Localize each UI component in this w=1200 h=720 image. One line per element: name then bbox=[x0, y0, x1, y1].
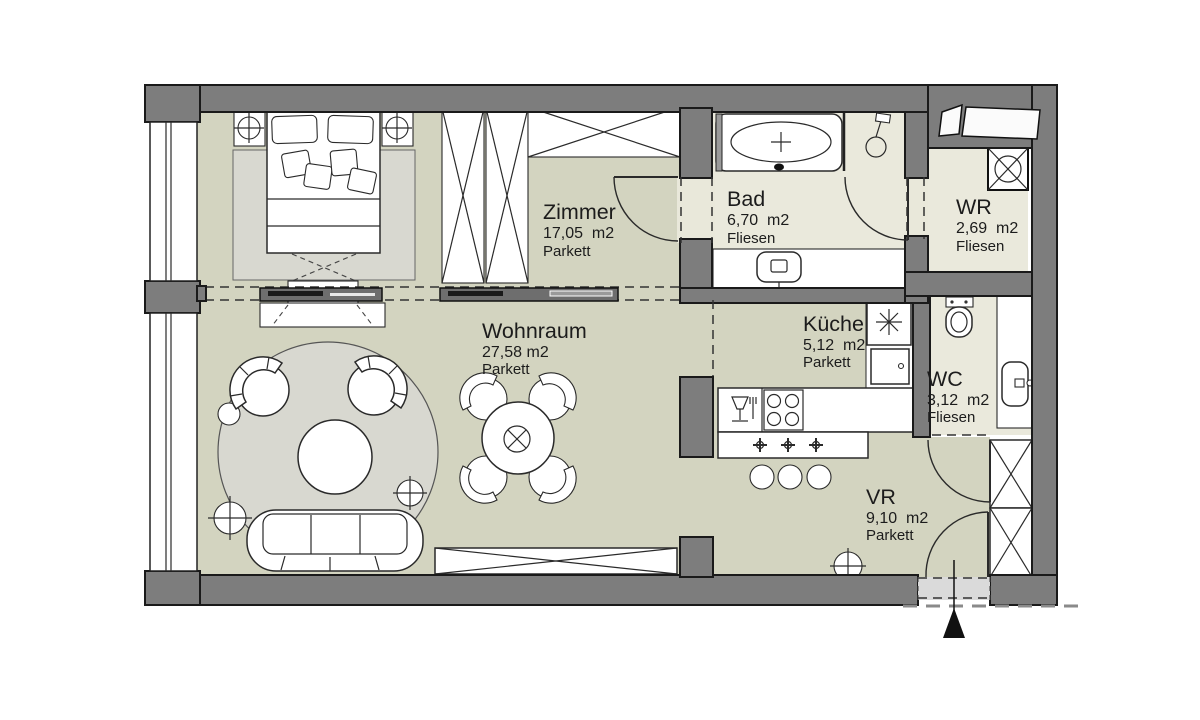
pillow bbox=[272, 115, 318, 144]
floor-plan-page: Zimmer 17,05 m2 Parkett Bad 6,70 m2 Flie… bbox=[0, 0, 1200, 720]
wall-zimmer-bad bbox=[680, 108, 712, 178]
window bbox=[150, 313, 197, 571]
room-area: 17,05 m2 bbox=[543, 225, 614, 242]
wall-wr-wc bbox=[905, 272, 1032, 296]
room-floor: Parkett bbox=[866, 527, 914, 544]
fridge bbox=[871, 349, 909, 384]
room-name: WR bbox=[956, 195, 992, 219]
room-area: 6,70 m2 bbox=[727, 212, 789, 229]
room-area: 5,12 m2 bbox=[803, 337, 865, 354]
floor-passage-bad bbox=[677, 177, 715, 243]
pillow bbox=[328, 115, 374, 144]
wall-bad-wr-top bbox=[905, 112, 928, 178]
wall-left-top bbox=[145, 85, 200, 122]
cushion bbox=[303, 163, 332, 189]
washing-machine-icon bbox=[988, 148, 1028, 190]
room-name: Bad bbox=[727, 187, 765, 211]
toilet-icon bbox=[946, 297, 973, 337]
wall-bad-kueche bbox=[680, 288, 930, 303]
hall-wardrobe bbox=[990, 440, 1032, 577]
bar-stool bbox=[750, 465, 774, 489]
room-name: Wohnraum bbox=[482, 319, 587, 343]
room-floor: Fliesen bbox=[927, 409, 975, 426]
sliding-door bbox=[260, 288, 382, 301]
coffee-table bbox=[298, 420, 372, 494]
bathtub bbox=[716, 114, 842, 171]
bar-stool bbox=[778, 465, 802, 489]
room-floor: Parkett bbox=[482, 361, 530, 378]
kitchen-counter bbox=[718, 388, 913, 432]
cushion bbox=[347, 168, 377, 195]
wall-wohnraum-kueche bbox=[680, 377, 713, 457]
wall-left-mid bbox=[145, 281, 200, 313]
room-area: 27,58 m2 bbox=[482, 344, 549, 361]
room-floor: Fliesen bbox=[956, 238, 1004, 255]
window bbox=[150, 122, 197, 281]
sliding-door bbox=[440, 288, 618, 301]
room-floor: Parkett bbox=[543, 243, 591, 260]
boiler-icon bbox=[867, 300, 911, 345]
wall-right bbox=[1032, 85, 1057, 605]
sofa bbox=[247, 510, 423, 571]
shaft bbox=[962, 107, 1040, 139]
room-name: VR bbox=[866, 485, 896, 509]
low-cabinet bbox=[435, 548, 677, 574]
room-area: 2,69 m2 bbox=[956, 220, 1018, 237]
wall-left-bottom bbox=[145, 571, 200, 605]
room-area: 9,10 m2 bbox=[866, 510, 928, 527]
room-name: WC bbox=[927, 367, 963, 391]
wc-sink-counter bbox=[997, 295, 1033, 428]
bar-stool bbox=[807, 465, 831, 489]
wall-bottom-right bbox=[990, 575, 1057, 605]
room-area: 3,12 m2 bbox=[927, 392, 989, 409]
tv-sideboard bbox=[260, 303, 385, 327]
room-floor: Parkett bbox=[803, 354, 851, 371]
wall-wohnraum-vr bbox=[680, 537, 713, 577]
wall-top bbox=[145, 85, 1057, 112]
wall-bottom bbox=[145, 575, 918, 605]
bath-sink bbox=[757, 252, 801, 282]
room-floor: Fliesen bbox=[727, 230, 775, 247]
floor-plan: Zimmer 17,05 m2 Parkett Bad 6,70 m2 Flie… bbox=[0, 0, 1200, 720]
room-name: Küche bbox=[803, 312, 864, 336]
room-name: Zimmer bbox=[543, 200, 616, 224]
